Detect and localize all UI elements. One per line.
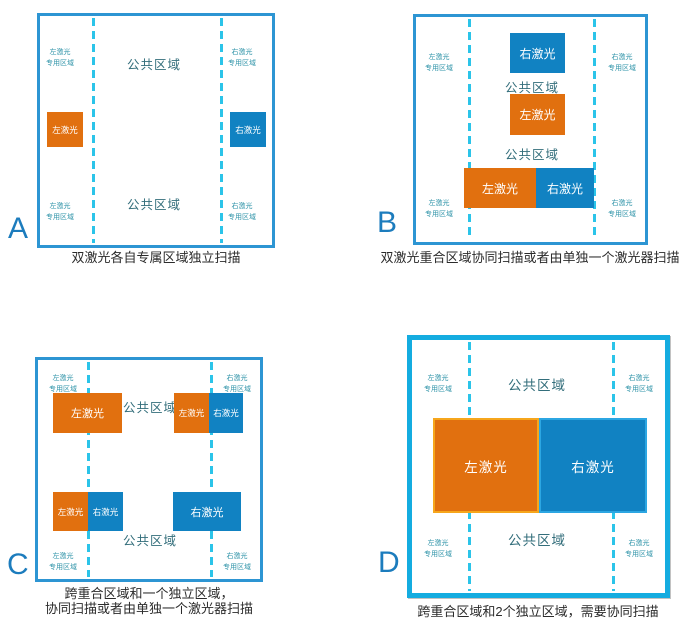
diagram-canvas: 左激光 专用区域 公共区域 右激光 专用区域 左激光 右激光 公共区域 左激光 … xyxy=(0,0,689,633)
right-laser-box: 右激光 xyxy=(209,393,243,433)
right-laser-box: 右激光 xyxy=(230,112,266,147)
panel-d-caption: 跨重合区域和2个独立区域，需要协同扫描 xyxy=(388,605,688,620)
right-divider-dashed-line xyxy=(220,18,223,243)
left-laser-zone-label: 左激光 专用区域 xyxy=(420,374,456,395)
panel-a-caption: 双激光各自专属区域独立扫描 xyxy=(16,251,296,266)
right-laser-zone-label: 右激光 专用区域 xyxy=(219,374,255,395)
panel-a-frame: 左激光 专用区域 公共区域 右激光 专用区域 左激光 右激光 公共区域 左激光 … xyxy=(37,13,275,248)
left-laser-zone-label: 左激光 专用区域 xyxy=(45,552,81,573)
right-laser-zone-label: 右激光 专用区域 xyxy=(604,199,640,220)
left-laser-box: 左激光 xyxy=(433,418,539,513)
left-laser-zone-label: 左激光 专用区域 xyxy=(42,202,78,223)
right-laser-zone-label: 右激光 专用区域 xyxy=(219,552,255,573)
right-laser-zone-label: 右激光 专用区域 xyxy=(621,374,657,395)
common-area-label: 公共区域 xyxy=(495,374,579,394)
left-laser-zone-label: 左激光 专用区域 xyxy=(420,539,456,560)
panel-c-frame: 左激光 专用区域 右激光 专用区域 左激光 公共区域 左激光 右激光 左激光 右… xyxy=(35,357,263,582)
left-laser-zone-label: 左激光 专用区域 xyxy=(42,48,78,69)
panel-b-caption: 双激光重合区域协同扫描或者由单独一个激光器扫描 xyxy=(380,251,680,266)
common-area-label: 公共区域 xyxy=(490,144,574,163)
common-area-label: 公共区域 xyxy=(112,194,196,213)
left-laser-zone-label: 左激光 专用区域 xyxy=(421,53,457,74)
right-laser-zone-label: 右激光 专用区域 xyxy=(604,53,640,74)
panel-b-frame: 左激光 专用区域 右激光 专用区域 右激光 公共区域 左激光 公共区域 左激光 … xyxy=(413,14,648,245)
common-area-label: 公共区域 xyxy=(108,530,192,549)
panel-d-frame: 左激光 专用区域 公共区域 右激光 专用区域 左激光 右激光 公共区域 左激光 … xyxy=(407,335,670,598)
left-laser-zone-label: 左激光 专用区域 xyxy=(45,374,81,395)
left-laser-box: 左激光 xyxy=(510,94,565,135)
right-laser-zone-label: 右激光 专用区域 xyxy=(224,48,260,69)
right-laser-box: 右激光 xyxy=(510,33,565,73)
common-area-label: 公共区域 xyxy=(495,529,579,549)
right-laser-zone-label: 右激光 专用区域 xyxy=(224,202,260,223)
panel-c-caption: 跨重合区域和一个独立区域， 协同扫描或者由单独一个激光器扫描 xyxy=(9,587,289,617)
left-laser-zone-label: 左激光 专用区域 xyxy=(421,199,457,220)
left-laser-box: 左激光 xyxy=(47,112,83,147)
panel-a-letter: A xyxy=(8,214,28,244)
panel-b-letter: B xyxy=(377,208,397,238)
common-area-label: 公共区域 xyxy=(112,54,196,73)
panel-c-letter: C xyxy=(7,550,29,580)
right-laser-zone-label: 右激光 专用区域 xyxy=(621,539,657,560)
left-laser-box: 左激光 xyxy=(174,393,209,433)
right-laser-box: 右激光 xyxy=(173,492,241,531)
panel-d-letter: D xyxy=(378,548,400,578)
right-laser-box: 右激光 xyxy=(539,418,647,513)
left-laser-box: 左激光 xyxy=(53,492,88,531)
right-laser-box: 右激光 xyxy=(536,168,594,208)
right-laser-box: 右激光 xyxy=(88,492,123,531)
left-laser-box: 左激光 xyxy=(464,168,536,208)
left-divider-dashed-line xyxy=(92,18,95,243)
